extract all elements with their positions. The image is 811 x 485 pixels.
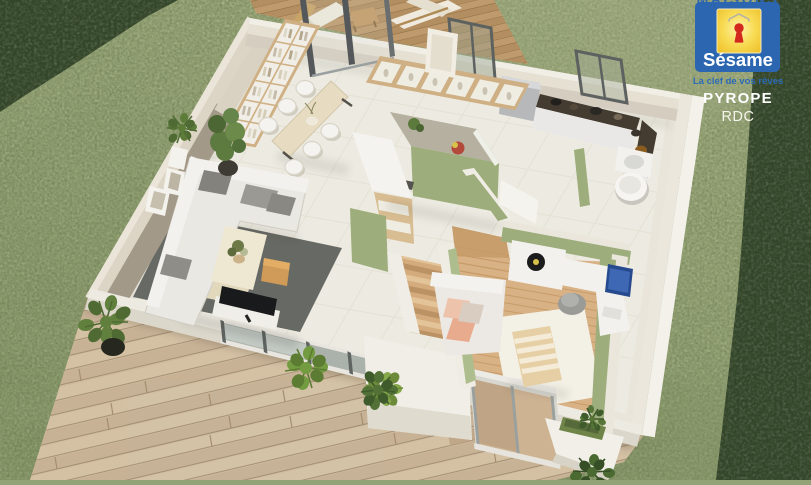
- svg-text:PYROPE: PYROPE: [703, 90, 773, 107]
- svg-text:RDC: RDC: [722, 109, 755, 125]
- svg-text:Sésame: Sésame: [703, 49, 773, 70]
- svg-text:La clef de vos rêves: La clef de vos rêves: [693, 76, 783, 87]
